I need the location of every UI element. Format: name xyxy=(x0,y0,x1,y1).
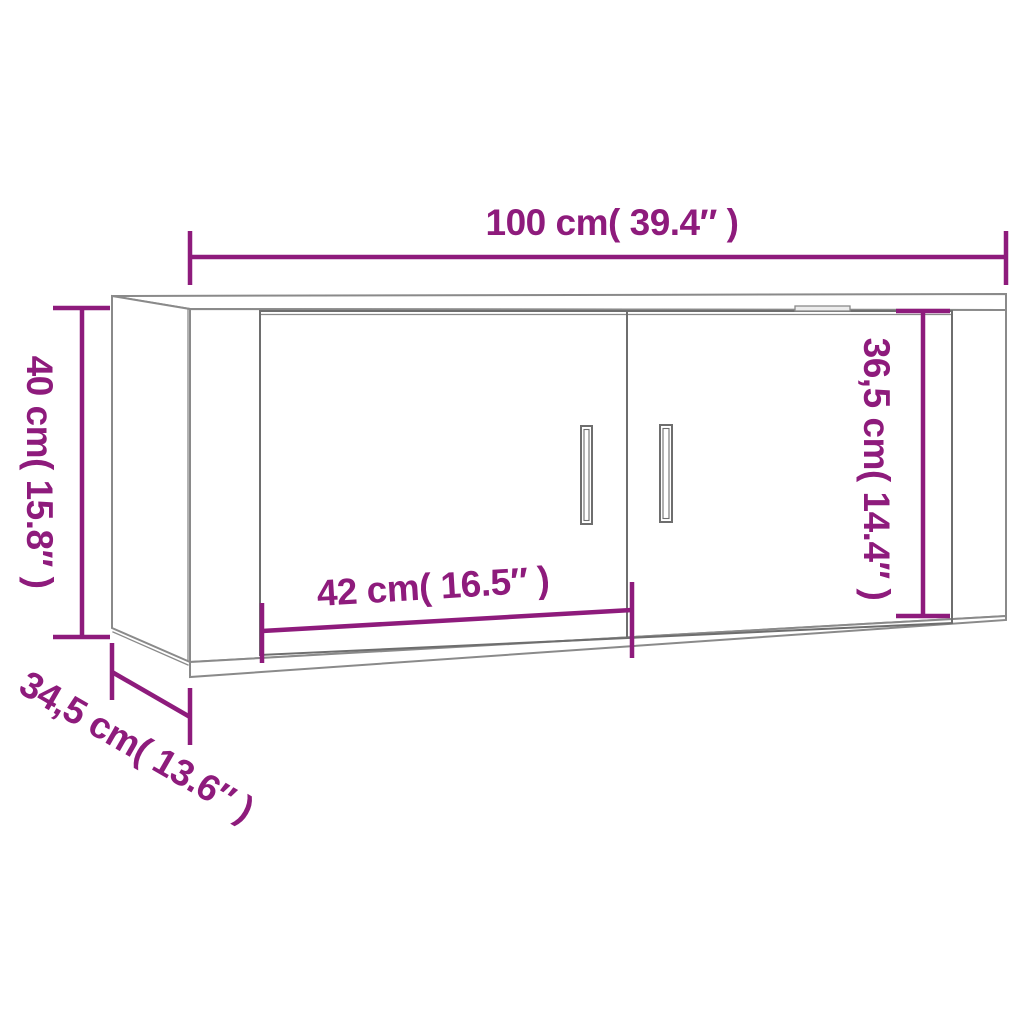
mount-bracket-notch xyxy=(795,306,850,311)
dimension-diagram-canvas: 100 cm( 39.4″ ) 40 cm( 15.8″ ) 36,5 cm( … xyxy=(0,0,1024,1024)
dimension-label-overall-height: 40 cm( 15.8″ ) xyxy=(19,356,60,589)
dimension-label-inner-height: 36,5 cm( 14.4″ ) xyxy=(856,338,897,601)
dimension-line xyxy=(112,672,190,717)
cabinet-top-face xyxy=(112,294,1006,310)
dimension-overall-height: 40 cm( 15.8″ ) xyxy=(19,308,110,637)
dimension-overall-width: 100 cm( 39.4″ ) xyxy=(190,202,1006,285)
cabinet-left-panel xyxy=(112,296,190,662)
dimension-label-overall-width: 100 cm( 39.4″ ) xyxy=(486,202,739,243)
product-dimension-image: 100 cm( 39.4″ ) 40 cm( 15.8″ ) 36,5 cm( … xyxy=(0,0,1024,1024)
